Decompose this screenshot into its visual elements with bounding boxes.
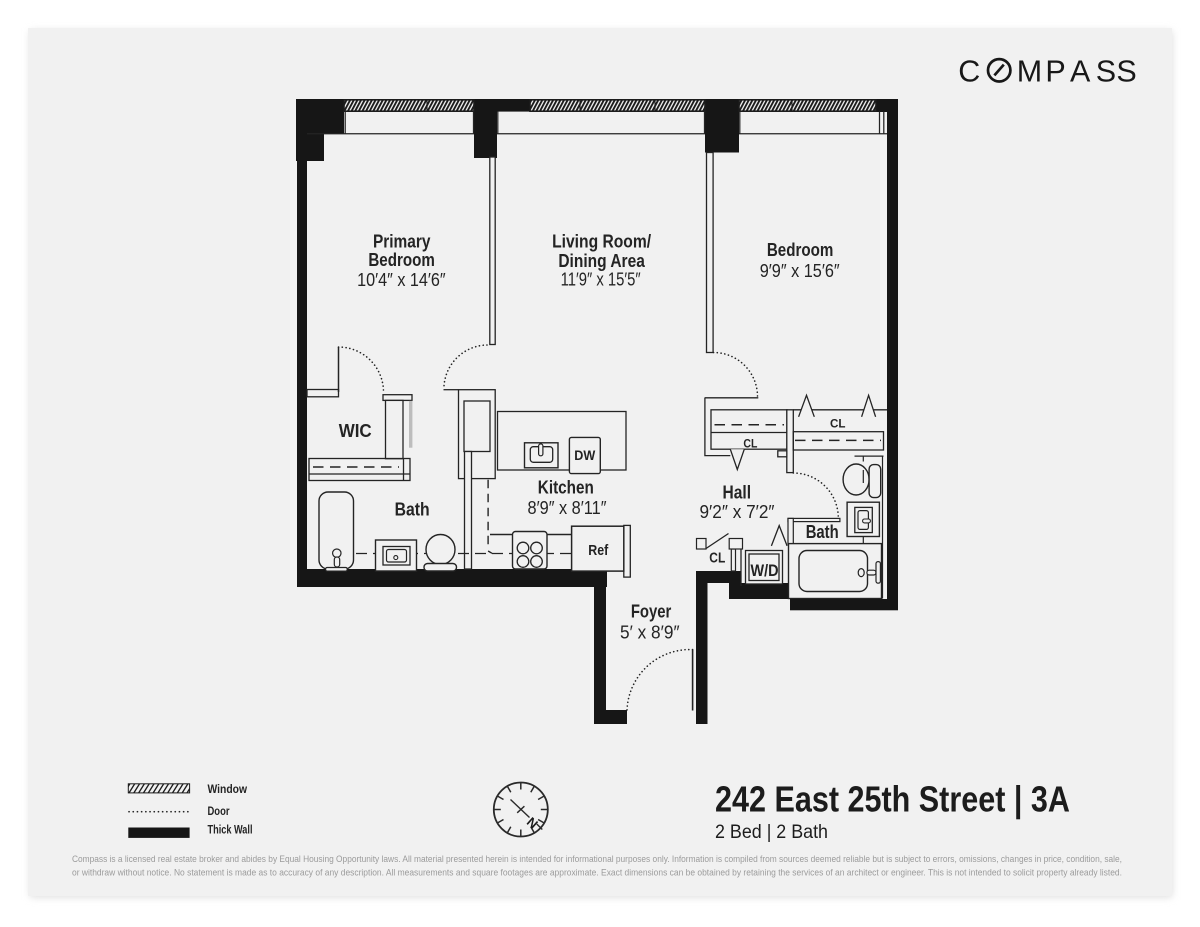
svg-text:CL: CL (743, 438, 757, 450)
svg-text:WIC: WIC (339, 421, 372, 441)
svg-text:Door: Door (208, 806, 230, 818)
svg-text:DW: DW (574, 448, 595, 463)
svg-text:S: S (1096, 54, 1116, 88)
svg-text:Bath: Bath (395, 499, 430, 519)
svg-text:Window: Window (208, 784, 248, 796)
svg-text:S: S (1116, 54, 1136, 88)
svg-text:2 Bed | 2 Bath: 2 Bed | 2 Bath (715, 821, 828, 843)
svg-text:Living Room/: Living Room/ (552, 232, 651, 252)
svg-text:CL: CL (830, 418, 846, 430)
svg-text:M: M (1017, 54, 1042, 88)
svg-text:CL: CL (709, 550, 725, 566)
svg-text:C: C (958, 54, 980, 88)
svg-text:Compass is a licensed real est: Compass is a licensed real estate broker… (72, 854, 1122, 864)
svg-text:Bedroom: Bedroom (368, 250, 435, 270)
svg-text:Foyer: Foyer (631, 602, 672, 622)
svg-text:A: A (1070, 54, 1091, 88)
svg-text:Kitchen: Kitchen (538, 478, 594, 498)
svg-text:P: P (1045, 54, 1065, 88)
svg-text:Thick Wall: Thick Wall (208, 824, 253, 836)
svg-text:Bedroom: Bedroom (767, 240, 834, 260)
svg-text:10′4″ x 14′6″: 10′4″ x 14′6″ (357, 270, 446, 290)
svg-text:or withdraw without notice. No: or withdraw without notice. No statement… (72, 868, 1122, 878)
svg-text:Ref: Ref (588, 542, 609, 559)
svg-text:5′ x 8′9″: 5′ x 8′9″ (620, 622, 680, 642)
svg-text:8′9″ x 8′11″: 8′9″ x 8′11″ (528, 498, 608, 518)
svg-text:9′9″ x 15′6″: 9′9″ x 15′6″ (760, 261, 841, 281)
svg-text:W/D: W/D (751, 561, 779, 580)
svg-text:11′9″ x 15′5″: 11′9″ x 15′5″ (561, 270, 642, 290)
svg-text:Dining Area: Dining Area (558, 251, 645, 271)
svg-text:242 East 25th Street | 3A: 242 East 25th Street | 3A (715, 779, 1070, 821)
svg-text:Primary: Primary (373, 232, 431, 252)
svg-text:Bath: Bath (806, 522, 839, 542)
svg-text:Hall: Hall (723, 482, 752, 502)
svg-text:9′2″ x 7′2″: 9′2″ x 7′2″ (700, 502, 776, 522)
